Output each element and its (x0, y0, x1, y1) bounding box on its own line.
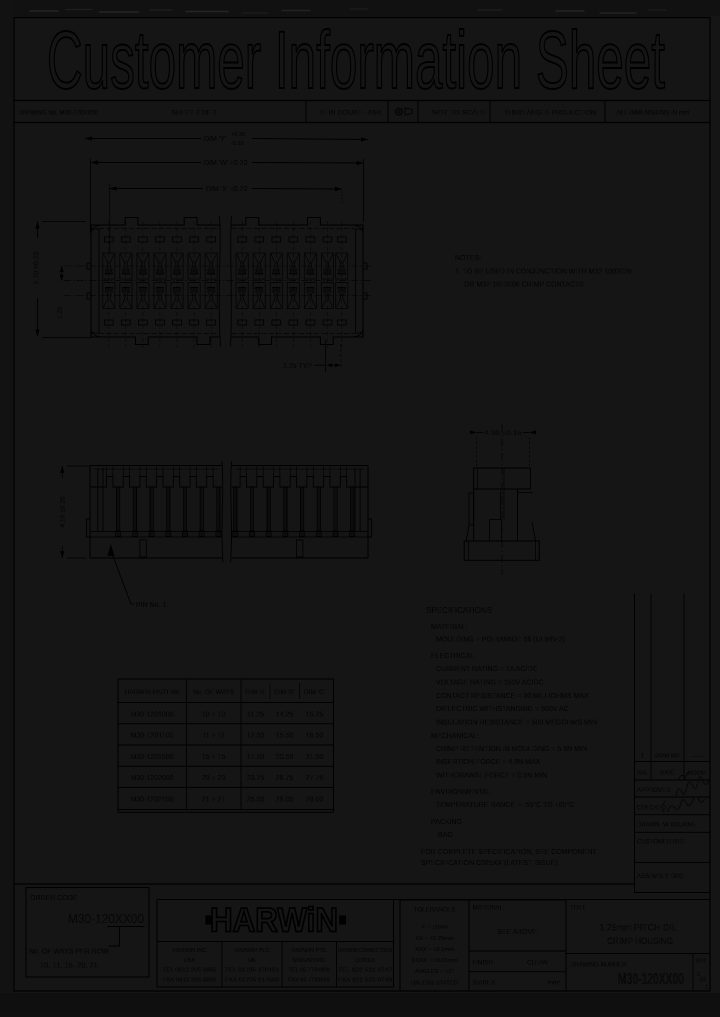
svg-text:CUSTOMER REF.: CUSTOMER REF. (637, 840, 686, 846)
svg-text:M30-1202000: M30-1202000 (130, 775, 173, 782)
svg-text:FINISH: FINISH (473, 960, 493, 967)
svg-text:M30-120XX00: M30-120XX00 (68, 912, 144, 926)
svg-text:HARWIN PTE: HARWIN PTE (291, 948, 326, 954)
svg-text:PACKING: PACKING (431, 819, 462, 826)
svg-text:INSULATION RESISTANCE = 500 ME: INSULATION RESISTANCE = 500 MEGOHMS MIN (436, 720, 597, 727)
svg-text:DIM 'Y': DIM 'Y' (204, 136, 226, 143)
svg-text:5.70 ±0.20: 5.70 ±0.20 (34, 251, 41, 284)
svg-text:10, 11, 15, 20, 21: 10, 11, 15, 20, 21 (40, 961, 98, 970)
svg-text:26.75: 26.75 (276, 775, 294, 782)
svg-text:11 + 11: 11 + 11 (202, 733, 225, 740)
svg-text:12.50: 12.50 (247, 733, 265, 740)
svg-text:11.25: 11.25 (247, 712, 264, 719)
svg-text:OF: OF (700, 978, 707, 984)
svg-text:DIM 'A': DIM 'A' (245, 689, 266, 696)
svg-text:APPROVED: APPROVED (637, 788, 671, 794)
svg-text:DRAWING NUMBER:: DRAWING NUMBER: (570, 963, 628, 969)
svg-text:04/99 WB: 04/99 WB (655, 754, 680, 760)
svg-text:DIM 'B': DIM 'B' (274, 689, 295, 696)
svg-text:M30-120XX00: M30-120XX00 (618, 971, 684, 988)
svg-text:OR M32-1012006 CRIMP CONTACTS: OR M32-1012006 CRIMP CONTACTS (464, 282, 584, 289)
svg-text:ASSEMBLY DRG: ASSEMBLY DRG (637, 874, 684, 880)
svg-text:WITHDRAWAL FORCE = 0.5N MIN: WITHDRAWAL FORCE = 0.5N MIN (436, 773, 547, 780)
svg-text:No. OF WAYS: No. OF WAYS (193, 689, 235, 696)
svg-text:FAX 01705 014500: FAX 01705 014500 (225, 977, 279, 983)
svg-text:21 + 21: 21 + 21 (202, 796, 226, 803)
svg-text:M30-1201500: M30-1201500 (130, 754, 173, 761)
svg-text:HARWIN INC: HARWIN INC (173, 948, 207, 954)
svg-text:ORDER CODE: ORDER CODE (30, 895, 78, 902)
svg-text:HARWIN CONNECTORS: HARWIN CONNECTORS (338, 948, 392, 954)
svg-text:UNLESS STATED: UNLESS STATED (411, 981, 458, 987)
svg-text:+0.30: +0.30 (231, 132, 245, 138)
svg-text:MATERIAL:: MATERIAL: (473, 905, 505, 912)
svg-text:M30-1201000: M30-1201000 (130, 712, 173, 719)
svg-text:M30-1202100: M30-1202100 (130, 796, 173, 803)
svg-text:20.50: 20.50 (276, 754, 294, 761)
svg-text:XXX = ±0.1mm: XXX = ±0.1mm (415, 947, 454, 953)
svg-text:UK: UK (248, 958, 256, 964)
svg-text:2: 2 (705, 985, 708, 991)
svg-text:No. OF WAYS PER ROW: No. OF WAYS PER ROW (29, 949, 109, 956)
svg-text:ELECTRICAL:: ELECTRICAL: (431, 653, 476, 660)
svg-text:FAX 65 7793069: FAX 65 7793069 (288, 977, 330, 983)
svg-text:XX = ±0.25mm: XX = ±0.25mm (415, 936, 454, 942)
svg-text:FOR COMPLETE SPECIFICATION, SE: FOR COMPLETE SPECIFICATION, SEE COMPONEN… (421, 849, 597, 856)
svg-text:SEE ABOVE: SEE ABOVE (497, 929, 537, 936)
svg-text:COREA: COREA (355, 958, 375, 964)
svg-text:-0.10: -0.10 (231, 141, 244, 147)
svg-text:DATE: DATE (660, 771, 675, 777)
svg-text:27.75: 27.75 (306, 775, 324, 782)
svg-text:CONTACT RESISTANCE = 30 MILLIO: CONTACT RESISTANCE = 30 MILLIOHMS MAX (436, 693, 589, 700)
svg-text:TEL 0612 205 0855: TEL 0612 205 0855 (163, 968, 217, 974)
svg-text:SPECIFICATIONS: SPECIFICATIONS (426, 606, 492, 615)
svg-text:1.25mm PITCH DIL: 1.25mm PITCH DIL (600, 923, 677, 934)
svg-text:ENVIRONMENTAL:: ENVIRONMENTAL: (431, 789, 493, 796)
svg-text:MATERIAL:: MATERIAL: (431, 624, 467, 631)
svg-text:TEL 65 7794909: TEL 65 7794909 (288, 968, 329, 974)
svg-text:CLEAN: CLEAN (527, 960, 548, 967)
svg-text:17.50: 17.50 (247, 754, 265, 761)
svg-text:HARWIN PART No: HARWIN PART No (125, 689, 180, 696)
svg-text:S/AREA:: S/AREA: (473, 980, 498, 987)
svg-text:TITLE: TITLE (570, 905, 587, 912)
svg-text:PIN No. 1: PIN No. 1 (136, 602, 166, 609)
svg-text:USA: USA (184, 958, 196, 964)
svg-text:DIM 'W' ±0.20: DIM 'W' ±0.20 (204, 160, 248, 167)
svg-text:NOTES:: NOTES: (455, 255, 481, 262)
svg-text:16.50: 16.50 (306, 733, 324, 740)
svg-text:IF IN DOUBT - ASK: IF IN DOUBT - ASK (321, 110, 382, 117)
svg-text:FAX 0612 205 0856: FAX 0612 205 0856 (163, 977, 217, 983)
svg-text:mm²: mm² (548, 980, 560, 987)
svg-text:10 + 10: 10 + 10 (202, 712, 226, 719)
svg-text:MODN.: MODN. (688, 771, 707, 777)
svg-text:TEL 822 521 0747: TEL 822 521 0747 (338, 968, 392, 974)
svg-text:29.00: 29.00 (306, 796, 324, 803)
svg-text:M30-1201100: M30-1201100 (131, 733, 174, 740)
svg-text:Customer Information Sheet: Customer Information Sheet (47, 15, 665, 106)
svg-text:INSERTION FORCE = 4.9N MAX: INSERTION FORCE = 4.9N MAX (436, 759, 541, 766)
svg-text:NOT TO SCALE: NOT TO SCALE (432, 110, 487, 117)
svg-text:25.00: 25.00 (247, 796, 265, 803)
svg-text:1.25 TYP: 1.25 TYP (283, 363, 312, 370)
svg-text:21.50: 21.50 (306, 754, 324, 761)
svg-text:XXXX = ±0.01mm: XXXX = ±0.01mm (411, 958, 457, 964)
svg-text:HARWIN PLC: HARWIN PLC (234, 948, 269, 954)
svg-text:DRAWING No. M30-120XX00: DRAWING No. M30-120XX00 (18, 110, 98, 117)
svg-text:ALL DIMENSIONS IN mm: ALL DIMENSIONS IN mm (617, 110, 690, 117)
svg-text:DRAWN: DRAWN (637, 823, 659, 829)
svg-text:1.25: 1.25 (57, 306, 64, 319)
svg-text:——: —— (691, 754, 703, 760)
svg-text:VOLTAGE RATING = 150V AC/DC: VOLTAGE RATING = 150V AC/DC (436, 680, 544, 687)
svg-text:W BOURNE: W BOURNE (663, 823, 696, 829)
svg-text:20 + 20: 20 + 20 (202, 775, 226, 782)
svg-text:CRIMP HOUSING: CRIMP HOUSING (607, 936, 673, 947)
svg-text:23.75: 23.75 (247, 775, 265, 782)
svg-text:HARWiN: HARWiN (210, 902, 338, 940)
svg-text:DIELECTRIC WITHSTANDING = 500V: DIELECTRIC WITHSTANDING = 500V AC (436, 706, 569, 713)
svg-text:DIM 'C': DIM 'C' (304, 689, 325, 696)
svg-text:SPECIFICATION C025XX (LATEST I: SPECIFICATION C025XX (LATEST ISSUE) (421, 860, 558, 867)
svg-text:DIM 'X' ±0.20: DIM 'X' ±0.20 (206, 186, 248, 193)
svg-text:ISS.: ISS. (637, 771, 648, 777)
svg-text:TEL 01705 370451: TEL 01705 370451 (225, 968, 279, 974)
svg-text:FAX 822 521 0749: FAX 822 521 0749 (338, 977, 392, 983)
svg-text:4.30 ±0.15: 4.30 ±0.15 (484, 430, 523, 437)
svg-text:BAG: BAG (438, 832, 453, 839)
svg-text:X = ±1mm: X = ±1mm (421, 925, 448, 931)
svg-text:TOLERANCES: TOLERANCES (414, 907, 456, 914)
svg-text:TEMPERATURE RANGE = -55°C TO +: TEMPERATURE RANGE = -55°C TO +85°C (436, 801, 574, 809)
svg-text:SHT: SHT (696, 959, 707, 965)
svg-text:THIRD ANGLE PROJECTION: THIRD ANGLE PROJECTION (504, 110, 596, 117)
svg-text:28.00: 28.00 (276, 796, 294, 803)
svg-text:MECHANICAL:: MECHANICAL: (431, 733, 479, 740)
svg-text:14.25: 14.25 (276, 712, 294, 719)
svg-text:4.10 ±0.20: 4.10 ±0.20 (60, 496, 67, 527)
svg-text:15 + 15: 15 + 15 (202, 754, 226, 761)
svg-text:ANGLES = ±1°: ANGLES = ±1° (415, 969, 454, 975)
svg-text:SHEET 2 OF 2: SHEET 2 OF 2 (172, 110, 217, 117)
svg-text:15.50: 15.50 (276, 733, 294, 740)
svg-text:15.25: 15.25 (306, 712, 324, 719)
svg-text:CURRENT RATING = 1A AC/DC: CURRENT RATING = 1A AC/DC (436, 666, 537, 673)
svg-text:1. TO BE USED IN CONJUNCTION W: 1. TO BE USED IN CONJUNCTION WITH M32-10… (455, 269, 632, 276)
svg-text:SINGAPORE: SINGAPORE (292, 958, 326, 964)
svg-text:MOULDING = POLYAMIDE 66 (UL94V: MOULDING = POLYAMIDE 66 (UL94V-2) (436, 637, 565, 644)
svg-text:CRIMP RETENTION IN MOULDING =: CRIMP RETENTION IN MOULDING = 5.9N MIN (436, 746, 587, 753)
